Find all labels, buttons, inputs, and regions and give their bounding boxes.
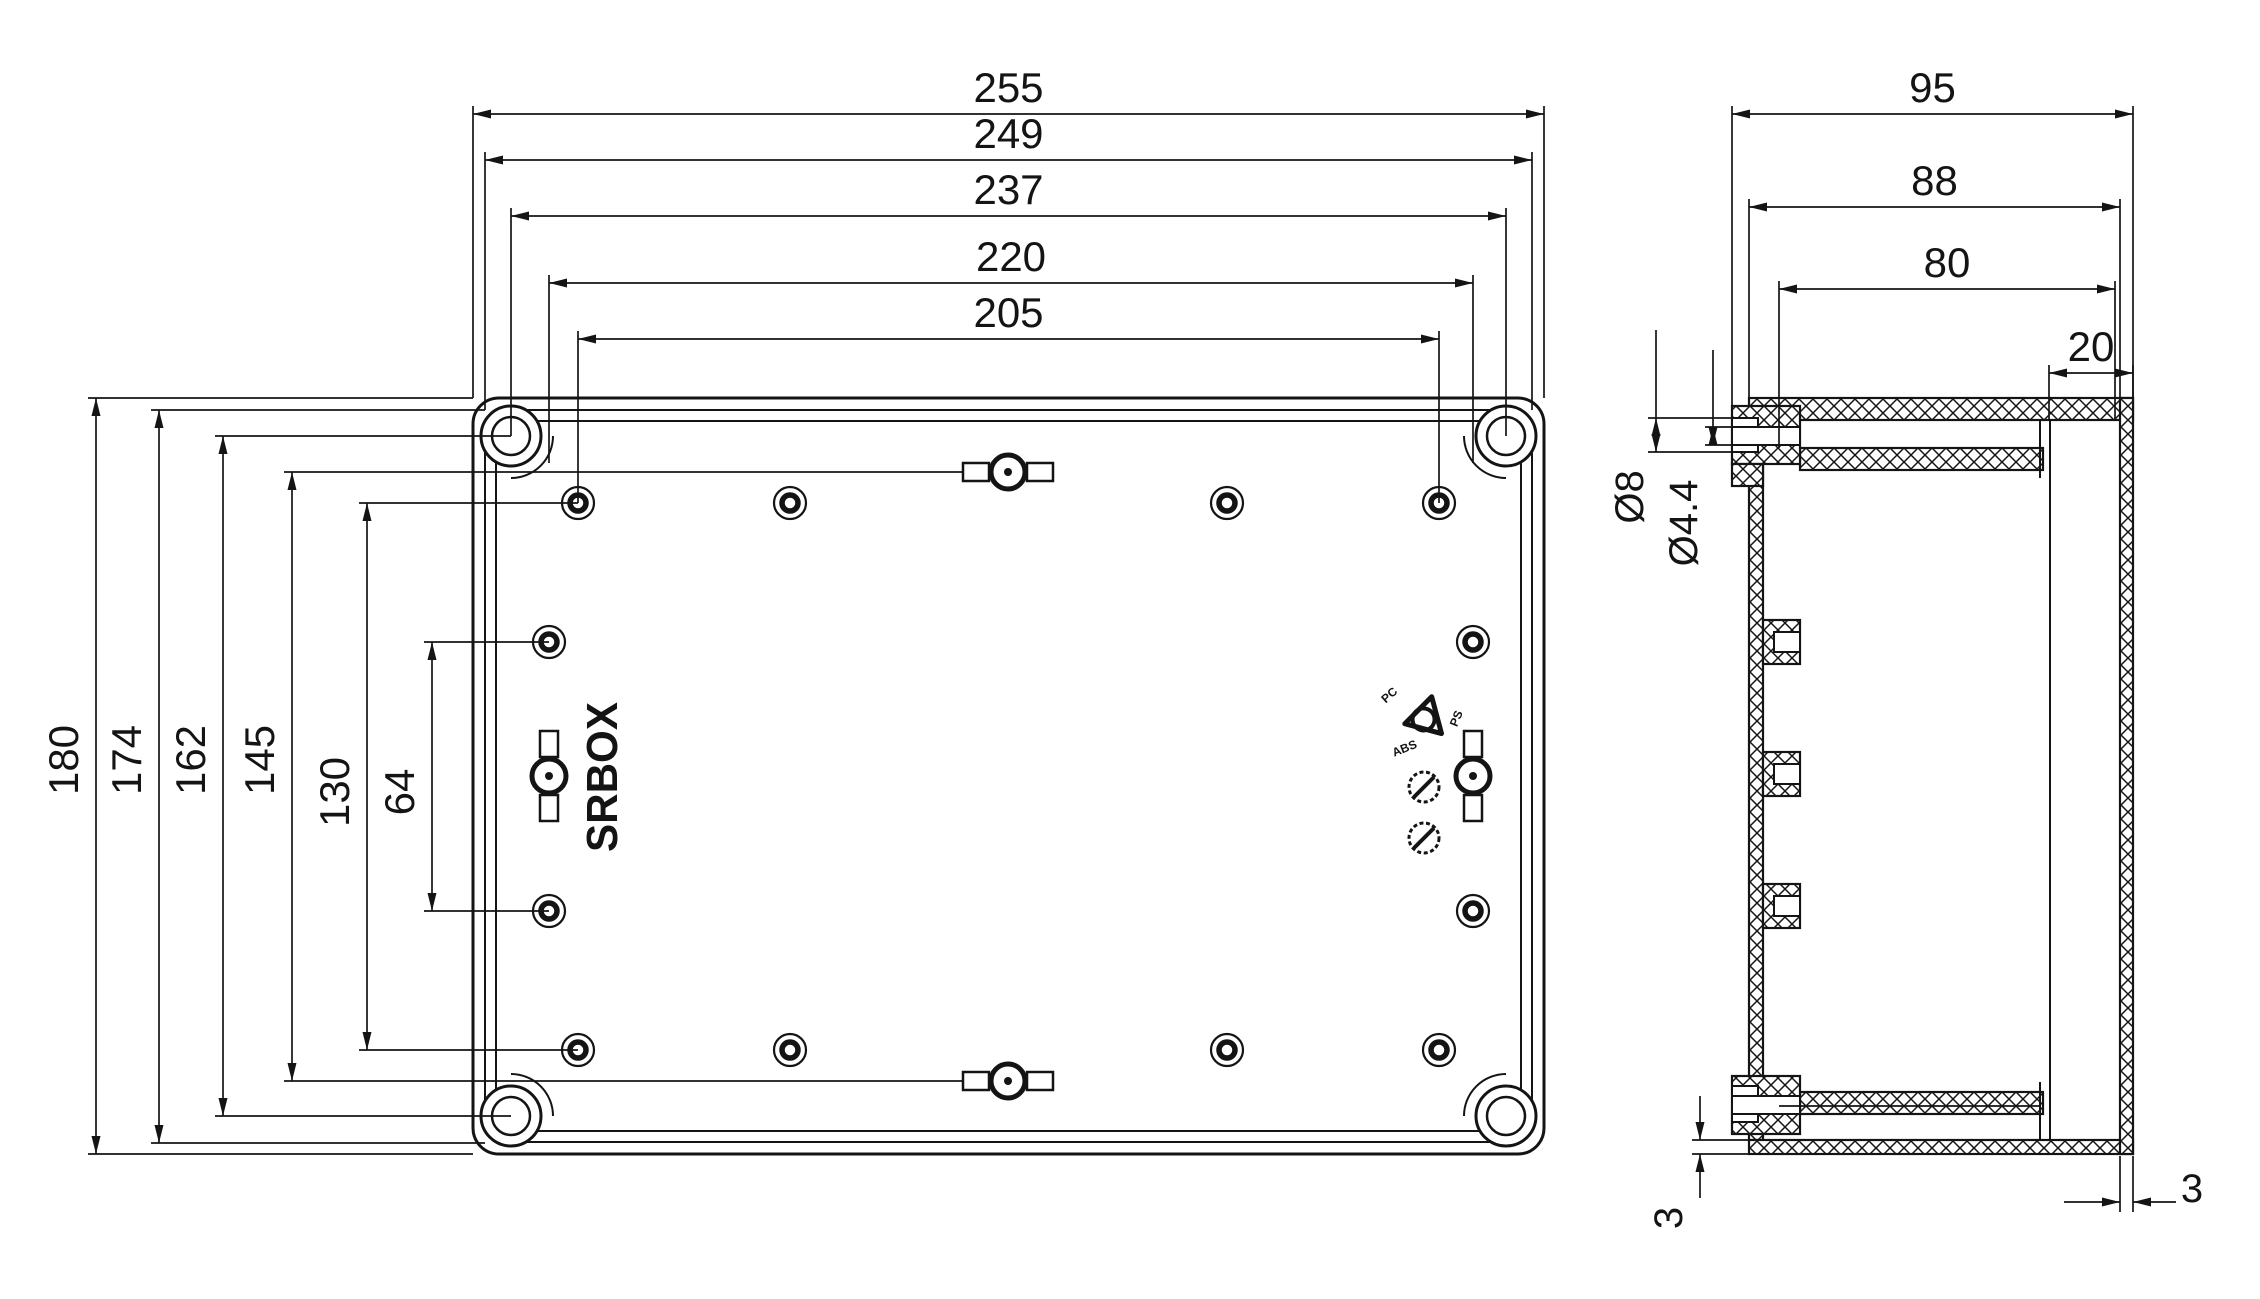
svg-text:Ø8: Ø8 (1608, 470, 1652, 523)
svg-text:130: 130 (311, 757, 358, 827)
lid-clips (532, 455, 1490, 1098)
svg-text:95: 95 (1909, 64, 1956, 111)
corner-screw (481, 1074, 553, 1146)
mounting-hole (1457, 895, 1489, 927)
svg-text:3: 3 (1647, 1207, 1691, 1229)
dim-174: 174 (103, 410, 485, 1143)
clip-wing (1464, 731, 1482, 757)
hole-channel (1732, 427, 1800, 445)
corner-screw (481, 406, 553, 478)
svg-text:205: 205 (973, 289, 1043, 336)
dim-dia-4-4: Ø4.4 (1662, 350, 1734, 566)
corner-screw (1464, 406, 1536, 478)
lid-clip (532, 731, 566, 821)
front-dimensions: 25524923722020518017416214513064 (40, 64, 1544, 1154)
svg-text:162: 162 (167, 725, 214, 795)
lid-clip (1456, 731, 1490, 821)
svg-text:PS: PS (1447, 708, 1466, 728)
hole-channel (1732, 1096, 1800, 1114)
wall-section (1800, 448, 2043, 470)
lid-clip (963, 455, 1053, 489)
mounting-hole (1211, 1034, 1243, 1066)
cad-drawing: SRBOXPCPSABS2552492372202051801741621451… (0, 0, 2260, 1299)
recycle-triangle-icon (1404, 692, 1450, 736)
dim-cover-thickness: 3 (2064, 1156, 2203, 1212)
lid-clip (963, 1064, 1053, 1098)
svg-text:Ø4.4: Ø4.4 (1662, 480, 1706, 567)
svg-text:220: 220 (976, 233, 1046, 280)
mounting-hole (1423, 1034, 1455, 1066)
hole-channel (1774, 764, 1800, 784)
svg-text:237: 237 (973, 166, 1043, 213)
enclosure-outline (473, 398, 1544, 1154)
mounting-hole (1457, 626, 1489, 658)
svg-text:PC: PC (1378, 684, 1400, 706)
mounting-hole (774, 1034, 806, 1066)
front-view: SRBOXPCPSABS2552492372202051801741621451… (40, 64, 1544, 1154)
svg-text:174: 174 (103, 725, 150, 795)
clip-wing (1027, 463, 1053, 481)
corner-screws (481, 406, 1536, 1146)
clip-wing (963, 463, 989, 481)
lid-outline (485, 410, 1532, 1142)
dim-64: 64 (376, 642, 549, 911)
wall-section (1732, 464, 1763, 486)
mounting-hole (1211, 487, 1243, 519)
clip-wing (1464, 795, 1482, 821)
svg-text:80: 80 (1924, 239, 1971, 286)
hole-channel (1774, 632, 1800, 652)
svg-text:64: 64 (376, 769, 423, 816)
material-marks: PCPSABS (1378, 684, 1465, 853)
wall-section (1749, 398, 2133, 420)
date-wheel-icon (1409, 772, 1439, 802)
side-dimensions: 95888020Ø8Ø4.433 (1608, 64, 2203, 1229)
mounting-holes (533, 487, 1489, 1066)
svg-text:145: 145 (236, 725, 283, 795)
side-view: 95888020Ø8Ø4.433 (1608, 64, 2203, 1229)
wall-section (1800, 1092, 2043, 1114)
clip-wing (1027, 1072, 1053, 1090)
date-wheel-icon (1409, 823, 1439, 853)
svg-text:88: 88 (1911, 157, 1958, 204)
clip-wing (540, 731, 558, 757)
svg-text:255: 255 (973, 64, 1043, 111)
dim-220: 220 (549, 233, 1473, 463)
brand-logo: SRBOX (578, 702, 627, 852)
svg-text:249: 249 (973, 110, 1043, 157)
svg-text:3: 3 (2181, 1167, 2203, 1211)
hole-channel (1774, 896, 1800, 916)
svg-text:ABS: ABS (1390, 737, 1419, 759)
mounting-hole (774, 487, 806, 519)
svg-text:SRBOX: SRBOX (578, 702, 627, 852)
svg-text:180: 180 (40, 725, 87, 795)
wall-section (1749, 1140, 2133, 1154)
lid-inner-outline (496, 421, 1521, 1131)
clip-wing (963, 1072, 989, 1090)
drawing-sheet: SRBOXPCPSABS2552492372202051801741621451… (0, 0, 2260, 1299)
wall-section (1749, 420, 1763, 1140)
svg-text:20: 20 (2068, 323, 2115, 370)
corner-screw (1464, 1074, 1536, 1146)
clip-wing (540, 795, 558, 821)
wall-section (2120, 398, 2133, 1154)
